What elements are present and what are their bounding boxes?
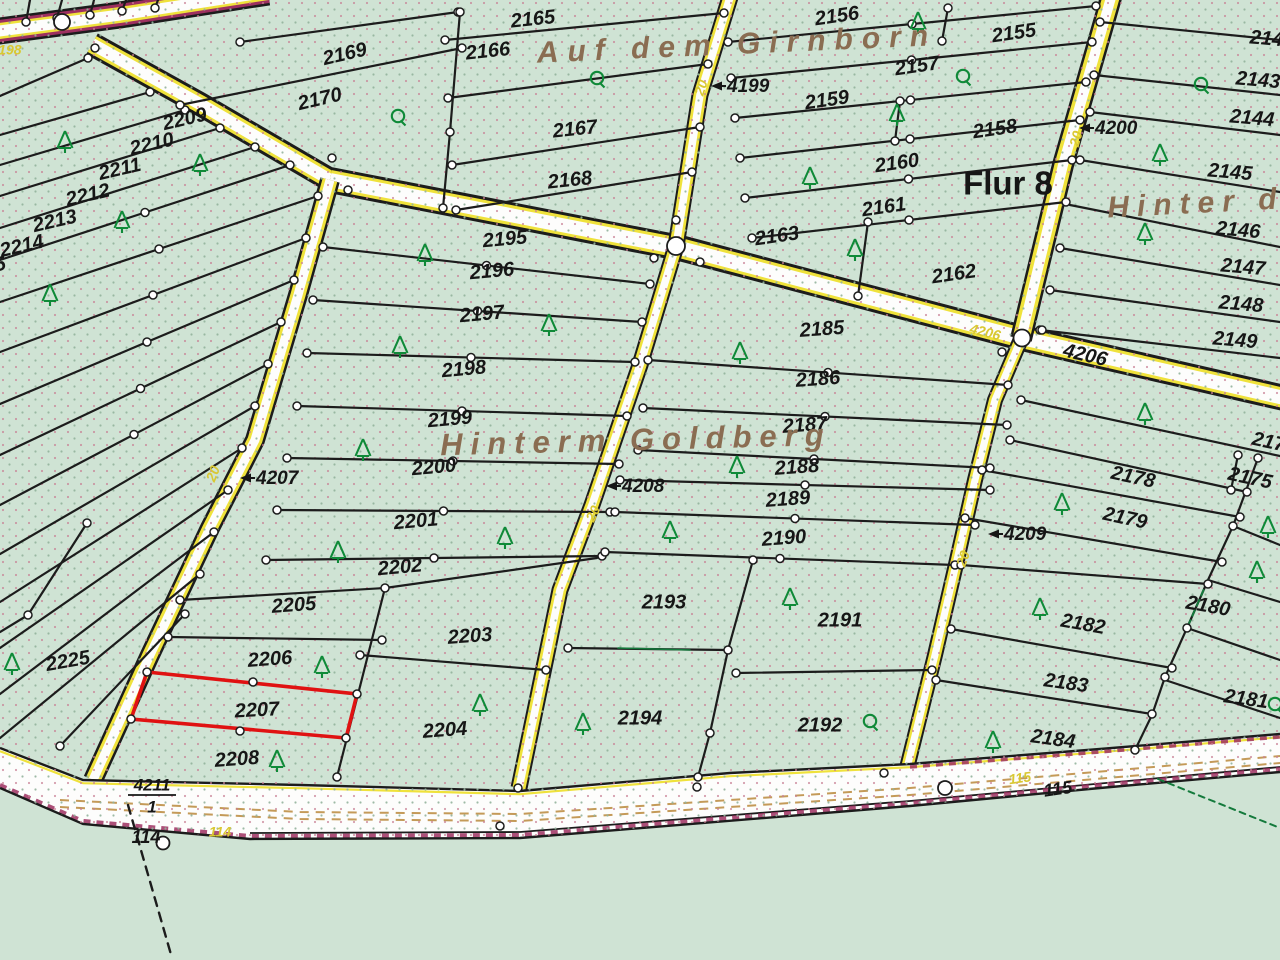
parcel-label-2206: 2206 bbox=[246, 647, 294, 672]
survey-point-icon bbox=[667, 237, 685, 255]
parcel-label-2197: 2197 bbox=[458, 301, 506, 327]
parcel-label-2189: 2189 bbox=[764, 487, 812, 512]
flur-label: Flur 8 bbox=[963, 165, 1053, 202]
parcel-label-2188: 2188 bbox=[773, 455, 821, 480]
parcel-label-2193: 2193 bbox=[641, 591, 687, 613]
parcel-label-2146: 2146 bbox=[1214, 217, 1262, 243]
road-number-label-4207: 4207 bbox=[255, 468, 300, 489]
survey-point-icon bbox=[54, 14, 70, 30]
yellow-road-label-114: 114 bbox=[209, 824, 232, 840]
point-label-115: 115 bbox=[1042, 777, 1074, 801]
parcel-label-2194: 2194 bbox=[617, 707, 663, 729]
parcel-label-2195: 2195 bbox=[481, 226, 529, 252]
parcel-label-2147: 2147 bbox=[1219, 254, 1267, 280]
parcel-label-2207: 2207 bbox=[233, 698, 280, 722]
parcel-label-2145: 2145 bbox=[1206, 159, 1254, 185]
point-label-114: 114 bbox=[132, 827, 161, 847]
parcel-label-2205: 2205 bbox=[270, 593, 318, 618]
road-number-label-4208: 4208 bbox=[621, 476, 665, 497]
parcel-label-2143: 2143 bbox=[1234, 67, 1280, 93]
parcel-label-2142: 2142 bbox=[1248, 26, 1280, 52]
road-number-label-4209: 4209 bbox=[1003, 524, 1047, 545]
parcel-label-2202: 2202 bbox=[376, 554, 423, 580]
parcel-label-2203: 2203 bbox=[446, 624, 493, 649]
parcel-label-2208: 2208 bbox=[213, 747, 261, 772]
parcel-label-2185: 2185 bbox=[798, 317, 846, 342]
fraction-numerator: 4211 bbox=[133, 775, 171, 794]
parcel-label-2149: 2149 bbox=[1211, 327, 1259, 353]
parcel-label-2198: 2198 bbox=[440, 356, 488, 382]
parcel-label-2190: 2190 bbox=[760, 526, 807, 551]
map-canvas[interactable]: 2165216621672168216921702209221022112212… bbox=[0, 0, 1280, 960]
cadastral-map[interactable]: 2165216621672168216921702209221022112212… bbox=[0, 0, 1280, 960]
parcel-label-2196: 2196 bbox=[468, 258, 516, 284]
road-number-label-4199: 4199 bbox=[726, 76, 770, 97]
parcel-label-2191: 2191 bbox=[817, 609, 863, 631]
parcel-label-2204: 2204 bbox=[421, 718, 468, 743]
yellow-road-label-4198: 4198 bbox=[0, 42, 22, 58]
yellow-road-label-115: 115 bbox=[1008, 768, 1033, 787]
parcel-label-2201: 2201 bbox=[392, 508, 439, 534]
survey-point-icon bbox=[1014, 330, 1031, 347]
parcel-label-2148: 2148 bbox=[1217, 291, 1265, 317]
survey-point-icon bbox=[938, 781, 952, 795]
road-number-label-4200: 4200 bbox=[1094, 118, 1138, 139]
parcel-label-2192: 2192 bbox=[797, 714, 843, 736]
parcel-label-2186: 2186 bbox=[794, 367, 842, 392]
parcel-label-2144: 2144 bbox=[1228, 105, 1275, 131]
fraction-denominator: 1 bbox=[147, 797, 156, 816]
